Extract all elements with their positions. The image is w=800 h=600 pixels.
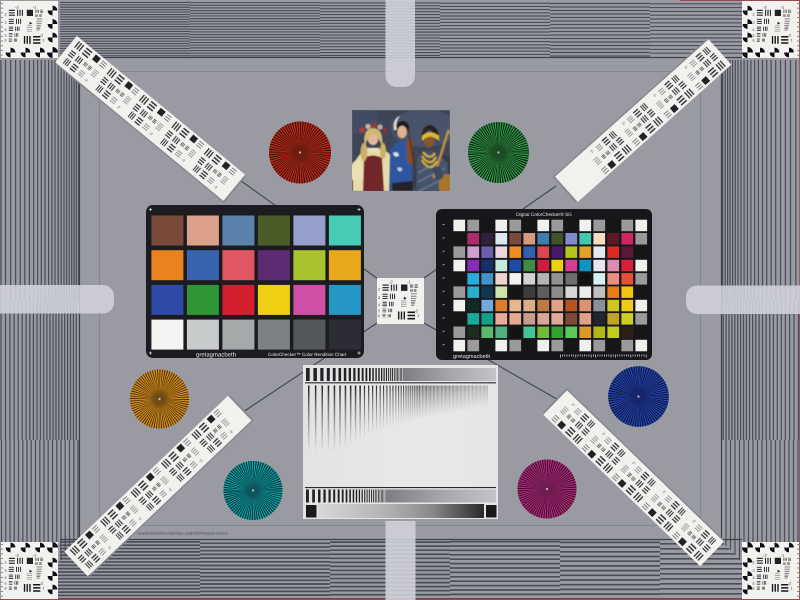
svg-text:Digital ColorChecker® SG: Digital ColorChecker® SG (516, 212, 572, 218)
svg-text:gretagmacbeth: gretagmacbeth (453, 353, 490, 360)
svg-text:ColorChecker™ Color Rendition: ColorChecker™ Color Rendition Chart (268, 352, 347, 357)
svg-text:Created and tested with new br: Created and tested with new bright desig… (137, 531, 229, 536)
svg-text:gretagmacbeth: gretagmacbeth (196, 352, 236, 359)
